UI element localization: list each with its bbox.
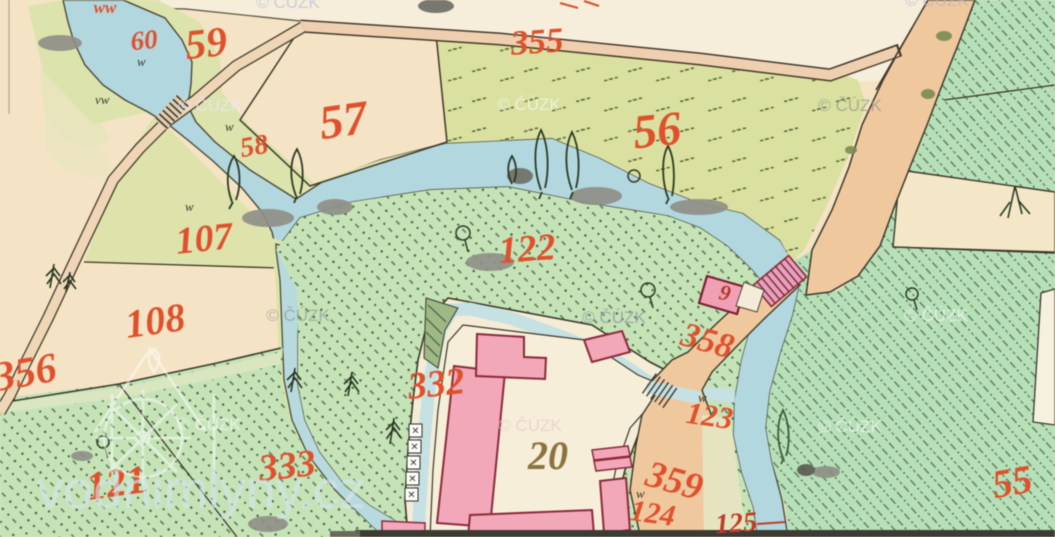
svg-text:123: 123 — [684, 395, 735, 436]
svg-text:58: 58 — [238, 129, 271, 164]
svg-text:✕: ✕ — [409, 458, 417, 469]
svg-text:332: 332 — [405, 360, 467, 408]
svg-text:355: 355 — [508, 20, 564, 63]
svg-text:✕: ✕ — [407, 490, 415, 501]
svg-text:✕: ✕ — [408, 474, 416, 485]
svg-text:✕: ✕ — [410, 442, 418, 453]
svg-text:© ČÚZK: © ČÚZK — [256, 0, 320, 12]
svg-text:59: 59 — [183, 19, 230, 69]
svg-text:© ČÚZK: © ČÚZK — [498, 416, 562, 435]
svg-text:56: 56 — [630, 102, 683, 160]
svg-text:122: 122 — [497, 226, 557, 272]
svg-text:© ČÚZK: © ČÚZK — [818, 96, 882, 115]
svg-text:107: 107 — [174, 215, 237, 263]
svg-text:57: 57 — [316, 91, 373, 150]
svg-text:© ČÚZK: © ČÚZK — [178, 96, 242, 115]
svg-text:w: w — [225, 119, 234, 134]
svg-text:vw: vw — [95, 92, 110, 107]
svg-text:© ČÚZK: © ČÚZK — [818, 417, 882, 436]
svg-text:vodnimlyny.cz: vodnimlyny.cz — [37, 461, 366, 520]
svg-text:✕: ✕ — [411, 426, 419, 437]
svg-text:125—: 125— — [714, 505, 786, 537]
svg-text:© ČÚZK: © ČÚZK — [497, 95, 561, 114]
svg-text:108: 108 — [122, 294, 188, 347]
svg-text:55: 55 — [988, 456, 1035, 507]
svg-text:w: w — [185, 199, 194, 214]
svg-text:ww: ww — [94, 0, 117, 17]
svg-text:124: 124 — [628, 494, 677, 533]
svg-text:60: 60 — [129, 24, 159, 57]
svg-text:© ČÚZK: © ČÚZK — [905, 0, 969, 10]
svg-text:© ČÚZK: © ČÚZK — [266, 306, 330, 325]
svg-text:© ČÚZK: © ČÚZK — [582, 308, 646, 327]
svg-text:© ČÚZK: © ČÚZK — [904, 306, 968, 325]
svg-text:w: w — [137, 54, 146, 69]
svg-text:© ČÚZK: © ČÚZK — [177, 415, 241, 434]
svg-text:20: 20 — [527, 433, 568, 478]
